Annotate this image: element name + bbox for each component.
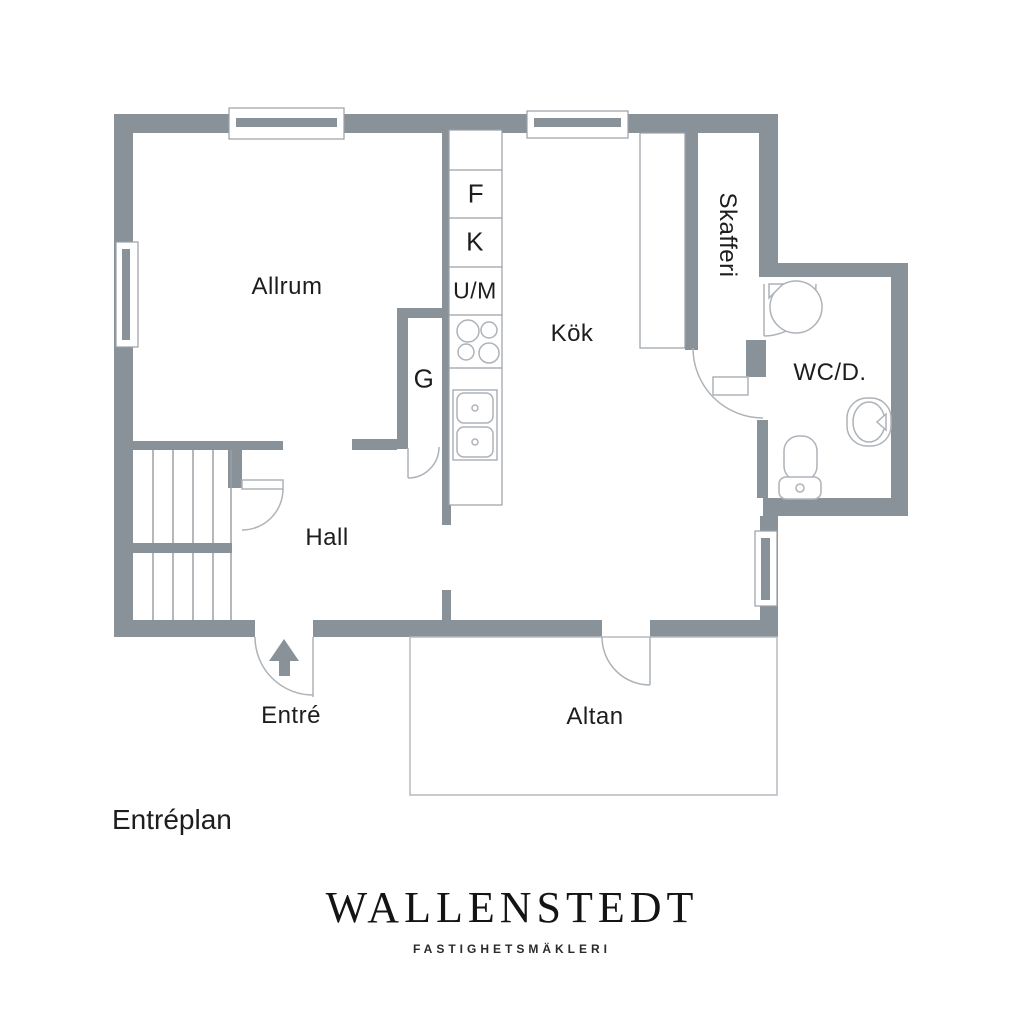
- kitchen-fixtures: [449, 130, 685, 505]
- shower: [769, 281, 822, 333]
- marker-freezer: F: [468, 179, 484, 210]
- kitchen-sink: [453, 390, 497, 460]
- wall-bottom-right: [650, 620, 778, 637]
- burner: [458, 344, 474, 360]
- brand-block: WALLENSTEDT FASTIGHETSMÄKLERI: [0, 884, 1024, 956]
- window-left-allrum: [116, 242, 138, 347]
- marker-fridge: K: [466, 227, 484, 258]
- wall-wc-right: [891, 263, 908, 516]
- wall-hall-top: [352, 439, 397, 450]
- wall-wc-top: [778, 263, 908, 277]
- toilet: [779, 436, 821, 499]
- stair-door: [242, 480, 283, 530]
- wall-kitchen-divider-stub: [442, 590, 451, 620]
- brand-logo-text: WALLENSTEDT: [0, 884, 1024, 932]
- window-top-kitchen: [527, 111, 628, 138]
- marker-wardrobe: G: [414, 364, 435, 395]
- window-top-allrum: [229, 108, 344, 139]
- room-label-kok: Kök: [551, 320, 594, 348]
- floorplan-drawing: [0, 0, 1024, 1019]
- floorplan-page: Allrum Kök Hall Skafferi WC/D. Entré Alt…: [0, 0, 1024, 1019]
- burner: [457, 320, 479, 342]
- room-label-hall: Hall: [305, 524, 348, 552]
- entrance-arrow-icon: [269, 639, 299, 676]
- altan-door: [602, 637, 650, 685]
- wall-bottom-left: [114, 620, 255, 637]
- brand-tagline: FASTIGHETSMÄKLERI: [0, 942, 1024, 956]
- wall-left: [114, 114, 133, 637]
- room-label-wc: WC/D.: [793, 359, 866, 387]
- wc-fixtures: [769, 281, 891, 499]
- wall-closet-top: [397, 308, 443, 318]
- floor-title: Entréplan: [112, 804, 232, 836]
- room-label-skafferi: Skafferi: [713, 193, 741, 278]
- room-label-entre: Entré: [261, 702, 321, 730]
- wall-top: [114, 114, 778, 133]
- window-right-hall: [755, 531, 777, 606]
- wall-wc-bottom: [763, 498, 908, 516]
- marker-oven-micro: U/M: [453, 278, 497, 305]
- stairs: [153, 450, 231, 620]
- washbasin: [847, 398, 891, 446]
- burner: [479, 343, 499, 363]
- room-label-altan: Altan: [566, 703, 623, 731]
- burner: [481, 322, 497, 338]
- kitchen-counter: [640, 133, 685, 348]
- wall-wc-left-lower: [757, 420, 768, 498]
- wall-stair-stub: [228, 450, 242, 488]
- wall-stair-top: [133, 441, 283, 450]
- exterior-walls: [114, 114, 908, 637]
- wall-bottom-mid: [313, 620, 602, 637]
- wall-right-upper: [759, 133, 778, 277]
- room-label-allrum: Allrum: [251, 273, 322, 301]
- wall-skafferi-left: [685, 133, 698, 350]
- wall-closet-left: [397, 308, 408, 449]
- wall-wc-left-upper: [746, 340, 766, 377]
- stair-landing-divider: [133, 543, 232, 553]
- closet-door: [408, 447, 439, 478]
